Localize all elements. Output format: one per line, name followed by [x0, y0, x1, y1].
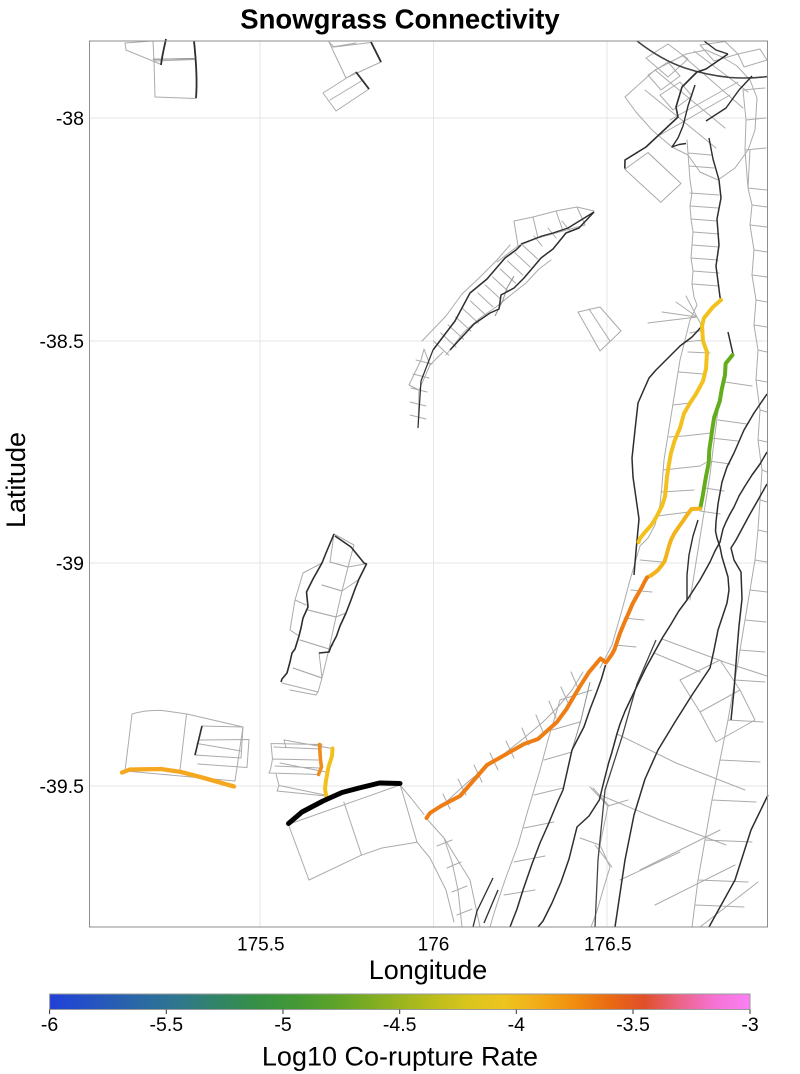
svg-text:176.5: 176.5 [584, 935, 632, 956]
svg-text:176: 176 [418, 935, 450, 956]
svg-text:-6: -6 [41, 1014, 58, 1036]
svg-text:-38.5: -38.5 [40, 331, 85, 353]
svg-text:-3: -3 [741, 1014, 758, 1036]
svg-text:Snowgrass Connectivity: Snowgrass Connectivity [240, 4, 560, 35]
svg-text:-5: -5 [274, 1014, 291, 1036]
svg-text:-3.5: -3.5 [616, 1014, 650, 1036]
svg-text:-39.5: -39.5 [40, 776, 85, 798]
svg-text:175.5: 175.5 [237, 935, 285, 956]
svg-text:Longitude: Longitude [369, 955, 488, 985]
svg-text:Log10 Co-rupture Rate: Log10 Co-rupture Rate [262, 1042, 538, 1072]
svg-text:Latitude: Latitude [1, 432, 31, 528]
svg-text:-39: -39 [56, 553, 84, 575]
svg-text:-38: -38 [56, 108, 84, 130]
svg-text:-4: -4 [508, 1014, 525, 1036]
svg-text:-4.5: -4.5 [383, 1014, 417, 1036]
svg-text:-5.5: -5.5 [149, 1014, 183, 1036]
